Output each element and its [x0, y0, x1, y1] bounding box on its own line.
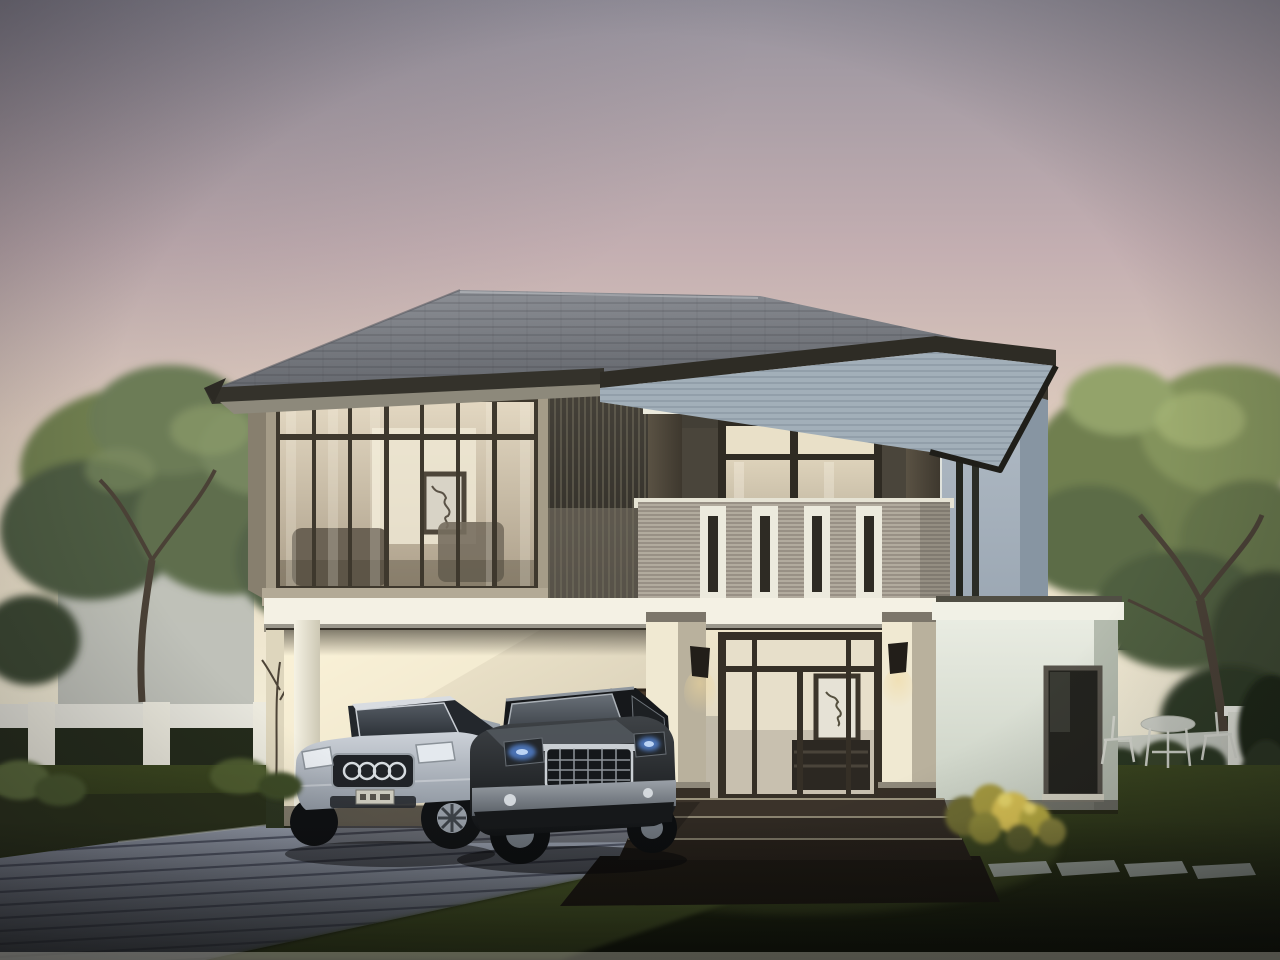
house-rendering — [0, 0, 1280, 960]
bottom-shade — [0, 820, 1280, 960]
vignette — [0, 0, 1280, 960]
bottom-edge-line — [0, 952, 1280, 960]
rendering-canvas — [0, 0, 1280, 960]
